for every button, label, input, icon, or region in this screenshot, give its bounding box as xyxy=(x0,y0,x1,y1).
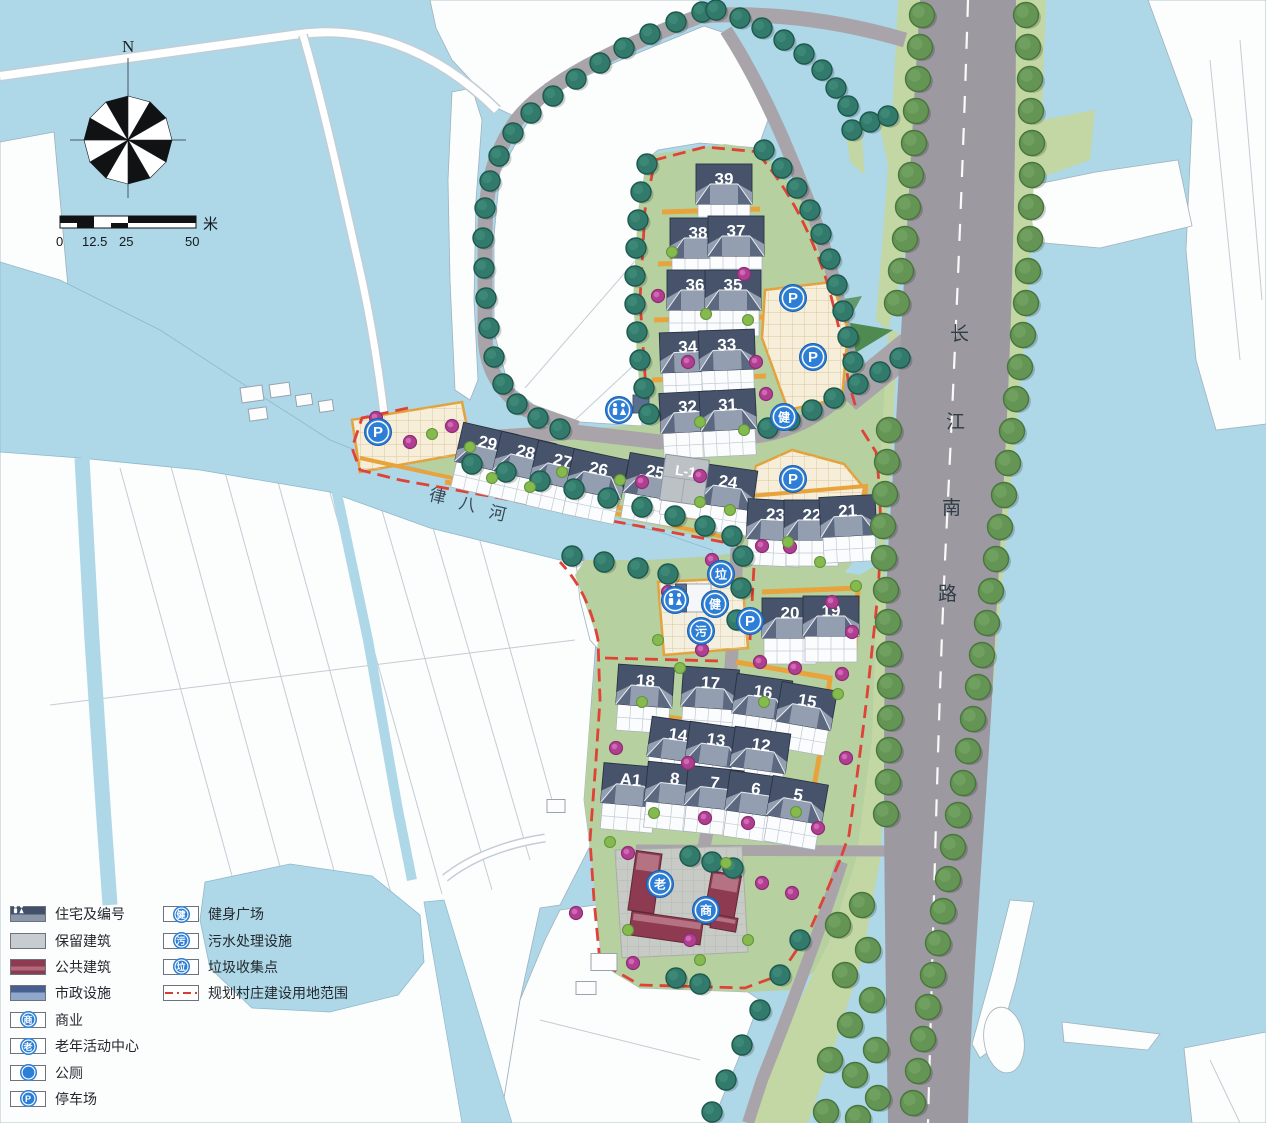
shrub-icon xyxy=(783,537,794,548)
svg-text:P: P xyxy=(788,471,798,488)
fitness-icon: 健 xyxy=(771,404,798,431)
svg-text:健: 健 xyxy=(778,410,791,425)
shrub-icon xyxy=(791,807,802,818)
shrub-icon xyxy=(739,425,750,436)
commerce-icon: 商 xyxy=(693,897,720,924)
flowering-shrub-icon xyxy=(446,420,459,433)
legend-item-commerce: 商 商业 xyxy=(10,1007,139,1033)
legend-item-municipal: 市政设施 xyxy=(10,980,139,1006)
svg-text:垃: 垃 xyxy=(715,567,727,582)
legend-item-toilet: 公厕 xyxy=(10,1059,139,1085)
legend-label: 老年活动中心 xyxy=(55,1036,139,1056)
shrub-icon xyxy=(557,467,568,478)
shrub-icon xyxy=(743,935,754,946)
flowering-shrub-icon xyxy=(754,656,767,669)
building-number: 15 xyxy=(796,690,818,712)
shrub-icon xyxy=(427,429,438,440)
north-label: N xyxy=(122,37,134,56)
building-number: 12 xyxy=(750,734,771,755)
flowering-shrub-icon xyxy=(404,436,417,449)
legend-right-column: 健 健身广场 污 污水处理设施 垃 垃圾收集点 规划村庄建设用地范围 xyxy=(163,901,348,1007)
legend-label: 商业 xyxy=(55,1010,83,1030)
scale-tick: 50 xyxy=(185,234,199,249)
flowering-shrub-icon xyxy=(750,356,763,369)
flowering-shrub-icon xyxy=(789,662,802,675)
building-number: 17 xyxy=(700,673,720,693)
existing-house xyxy=(576,982,596,995)
existing-house xyxy=(269,382,291,398)
building-21: 21 xyxy=(819,495,878,564)
flowering-shrub-icon xyxy=(627,957,640,970)
flowering-shrub-icon xyxy=(682,757,695,770)
building-number: 13 xyxy=(705,729,726,750)
legend-label: 规划村庄建设用地范围 xyxy=(208,983,348,1003)
flowering-shrub-icon xyxy=(786,887,799,900)
scale-tick: 25 xyxy=(119,234,133,249)
building-number: 33 xyxy=(717,335,737,355)
site-plan-map: 3938373635343332312928272625242322212019… xyxy=(0,0,1266,1123)
elderly-center-icon: 老 xyxy=(647,871,674,898)
flowering-shrub-icon xyxy=(652,290,665,303)
fitness-icon: 健 xyxy=(163,906,199,922)
flowering-shrub-icon xyxy=(622,847,635,860)
road-name-char: 长 xyxy=(950,323,969,345)
building-number: 24 xyxy=(717,471,739,493)
building-number: 32 xyxy=(678,397,698,417)
road-name-char: 路 xyxy=(938,583,957,605)
garbage-icon: 垃 xyxy=(163,959,199,975)
building-number: 34 xyxy=(678,337,698,357)
shrub-icon xyxy=(701,309,712,320)
building-number: 21 xyxy=(838,501,858,521)
legend-left-column: 住宅及编号 保留建筑 公共建筑 市政设施 商 商业 老 老年活动中心 xyxy=(10,901,139,1112)
legend-item-residence: 住宅及编号 xyxy=(10,901,139,927)
parking-icon: P xyxy=(737,608,764,635)
legend-label: 住宅及编号 xyxy=(55,904,125,924)
legend-item-garbage: 垃 垃圾收集点 xyxy=(163,954,348,980)
shrub-icon xyxy=(605,837,616,848)
building-number: A1 xyxy=(619,770,642,791)
legend-label: 污水处理设施 xyxy=(208,931,292,951)
flowering-shrub-icon xyxy=(756,540,769,553)
toilet-icon xyxy=(606,397,633,424)
building-number: 39 xyxy=(715,170,734,189)
flowering-shrub-icon xyxy=(836,668,849,681)
existing-house xyxy=(248,407,267,421)
building-35: 35 xyxy=(705,270,761,336)
flowering-shrub-icon xyxy=(756,877,769,890)
flowering-shrub-icon xyxy=(760,388,773,401)
shrub-icon xyxy=(695,497,706,508)
fitness-icon: 健 xyxy=(702,591,729,618)
svg-text:污: 污 xyxy=(695,624,707,639)
flowering-shrub-icon xyxy=(682,356,695,369)
building-number: 8 xyxy=(669,769,680,789)
flowering-shrub-icon xyxy=(696,644,709,657)
svg-text:P: P xyxy=(808,349,818,366)
shrub-icon xyxy=(487,473,498,484)
legend-item-boundary: 规划村庄建设用地范围 xyxy=(163,980,348,1006)
flowering-shrub-icon xyxy=(840,752,853,765)
svg-text:老: 老 xyxy=(654,877,666,892)
shrub-icon xyxy=(649,808,660,819)
legend-item-fitness: 健 健身广场 xyxy=(163,901,348,927)
flowering-shrub-icon xyxy=(738,268,751,281)
shrub-icon xyxy=(695,955,706,966)
sewage-icon: 污 xyxy=(688,618,715,645)
flowering-shrub-icon xyxy=(694,470,707,483)
building-number: 38 xyxy=(689,224,708,243)
toilet-icon xyxy=(10,1065,46,1081)
flowering-shrub-icon xyxy=(742,817,755,830)
shrub-icon xyxy=(815,557,826,568)
shrub-icon xyxy=(743,315,754,326)
road-name-char: 江 xyxy=(946,411,965,433)
shrub-icon xyxy=(695,417,706,428)
legend-label: 公厕 xyxy=(55,1063,83,1083)
shrub-icon xyxy=(653,635,664,646)
existing-house xyxy=(591,954,617,971)
flowering-shrub-icon xyxy=(636,476,649,489)
building-31: 31 xyxy=(699,389,758,458)
building-number: 14 xyxy=(667,724,689,746)
flowering-shrub-icon xyxy=(610,742,623,755)
building-number: 31 xyxy=(718,395,738,415)
public-building-swatch xyxy=(10,959,46,975)
shrub-icon xyxy=(637,697,648,708)
shrub-icon xyxy=(465,442,476,453)
parking-icon: P xyxy=(800,344,827,371)
existing-house xyxy=(547,800,565,813)
road-name-char: 南 xyxy=(942,497,961,519)
shrub-icon xyxy=(721,858,732,869)
commerce-icon: 商 xyxy=(10,1012,46,1028)
municipal-swatch xyxy=(10,985,46,1001)
svg-text:P: P xyxy=(373,424,383,441)
flowering-shrub-icon xyxy=(699,812,712,825)
building-33: 33 xyxy=(698,329,756,397)
shrub-icon xyxy=(615,475,626,486)
shrub-icon xyxy=(759,697,770,708)
building-number: 37 xyxy=(727,222,746,241)
svg-text:P: P xyxy=(745,613,755,630)
legend-item-parking: P 停车场 xyxy=(10,1086,139,1112)
scale-tick: 12.5 xyxy=(82,234,107,249)
building-number: 20 xyxy=(781,604,800,623)
sewage-icon: 污 xyxy=(163,933,199,949)
building-number: 36 xyxy=(686,276,705,295)
svg-text:健: 健 xyxy=(709,597,722,612)
svg-text:P: P xyxy=(788,290,798,307)
legend-item-elderly-center: 老 老年活动中心 xyxy=(10,1033,139,1059)
building-number: 18 xyxy=(635,671,655,691)
legend-label: 垃圾收集点 xyxy=(208,957,278,977)
legend-label: 保留建筑 xyxy=(55,931,111,951)
flowering-shrub-icon xyxy=(846,626,859,639)
svg-text:商: 商 xyxy=(700,903,712,918)
flowering-shrub-icon xyxy=(684,934,697,947)
elderly-center-icon: 老 xyxy=(10,1038,46,1054)
legend-label: 健身广场 xyxy=(208,904,264,924)
shrub-icon xyxy=(623,925,634,936)
shrub-icon xyxy=(833,689,844,700)
existing-house xyxy=(318,400,333,413)
garbage-icon: 垃 xyxy=(708,561,735,588)
shrub-icon xyxy=(725,505,736,516)
building-number: 26 xyxy=(587,458,609,481)
legend-item-public: 公共建筑 xyxy=(10,954,139,980)
shrub-icon xyxy=(851,581,862,592)
building-number: 7 xyxy=(709,773,720,793)
scale-tick: 0 xyxy=(56,234,63,249)
legend-label: 市政设施 xyxy=(55,983,111,1003)
legend-label: 停车场 xyxy=(55,1089,97,1109)
building-number: 22 xyxy=(803,506,822,525)
existing-house xyxy=(240,385,264,403)
flowering-shrub-icon xyxy=(570,907,583,920)
scale-unit: 米 xyxy=(203,216,218,233)
building-number: 23 xyxy=(765,505,785,525)
shrub-icon xyxy=(525,482,536,493)
parking-icon: P xyxy=(780,466,807,493)
retained-swatch xyxy=(10,933,46,949)
legend-item-sewage: 污 污水处理设施 xyxy=(163,927,348,953)
boundary-line-swatch xyxy=(163,985,199,1001)
flowering-shrub-icon xyxy=(826,596,839,609)
parking-icon: P xyxy=(780,285,807,312)
existing-house xyxy=(295,393,312,406)
parking-icon: P xyxy=(365,419,392,446)
legend-label: 公共建筑 xyxy=(55,957,111,977)
toilet-icon xyxy=(662,587,689,614)
flowering-shrub-icon xyxy=(812,822,825,835)
shrub-icon xyxy=(675,663,686,674)
legend-item-retained: 保留建筑 xyxy=(10,927,139,953)
shrub-icon xyxy=(667,247,678,258)
parking-icon: P xyxy=(10,1091,46,1107)
